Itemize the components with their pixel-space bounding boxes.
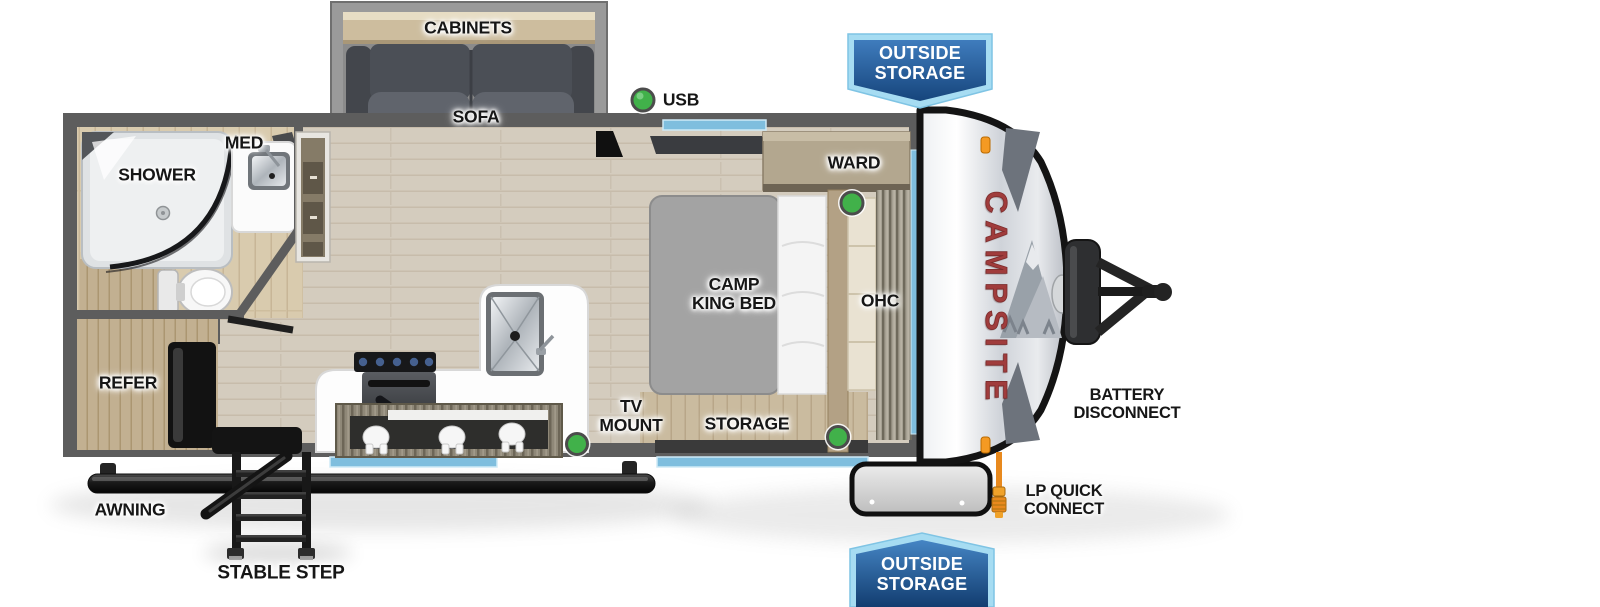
usb-indicator-icon [629,86,657,114]
label-storage: STORAGE [705,414,790,433]
label-camp-king-bed: CAMP KING BED [692,275,776,314]
pass-through-storage-box [852,464,990,514]
bathroom [77,127,330,344]
entry-door-mat [212,427,302,454]
toilet [158,269,232,315]
label-lp-quick-connect: LP QUICK CONNECT [1024,482,1104,518]
headboard-panel [828,190,848,452]
shower [82,132,236,272]
overhead-vent [650,136,768,154]
label-cabinets: CABINETS [424,18,512,37]
label-awning: AWNING [95,500,166,519]
campsite-brand-graphic: CAMPSITE [978,191,1014,407]
propane-cover [1064,240,1100,344]
label-stable-step: STABLE STEP [217,564,344,585]
label-ohc: OHC [861,291,899,310]
front-window-blinds [876,190,912,440]
badge-text-outside-storage-top: OUTSIDE STORAGE [875,44,966,84]
hitch-tongue [1052,240,1172,344]
storage-indicator-icon [825,424,852,451]
lp-hose [992,452,1006,518]
a-frame [1098,262,1150,332]
clearance-light-top-icon [981,137,990,153]
tv-indicator-icon [564,431,591,458]
coupler-icon [1154,283,1172,301]
label-refer: REFER [99,373,157,392]
floorplan-canvas: CABINETS SOFA USB WARD MED SHOWER CAMP K… [0,0,1600,607]
label-usb: USB [663,90,699,109]
kitchen-sink [486,292,553,376]
label-tv-mount: TV MOUNT [599,397,662,436]
label-med: MED [225,133,263,152]
label-shower: SHOWER [118,165,196,184]
label-sofa: SOFA [453,107,500,126]
outdoor-griddle-unit [336,404,562,457]
bed-indicator-top-icon [838,189,866,217]
floorplan-drawing [0,0,1600,607]
clearance-light-bottom-icon [981,437,990,453]
badge-text-outside-storage-bottom: OUTSIDE STORAGE [877,555,968,595]
linen-cabinet [296,132,330,262]
label-battery-disconnect: BATTERY DISCONNECT [1073,386,1180,422]
label-ward: WARD [828,153,881,172]
